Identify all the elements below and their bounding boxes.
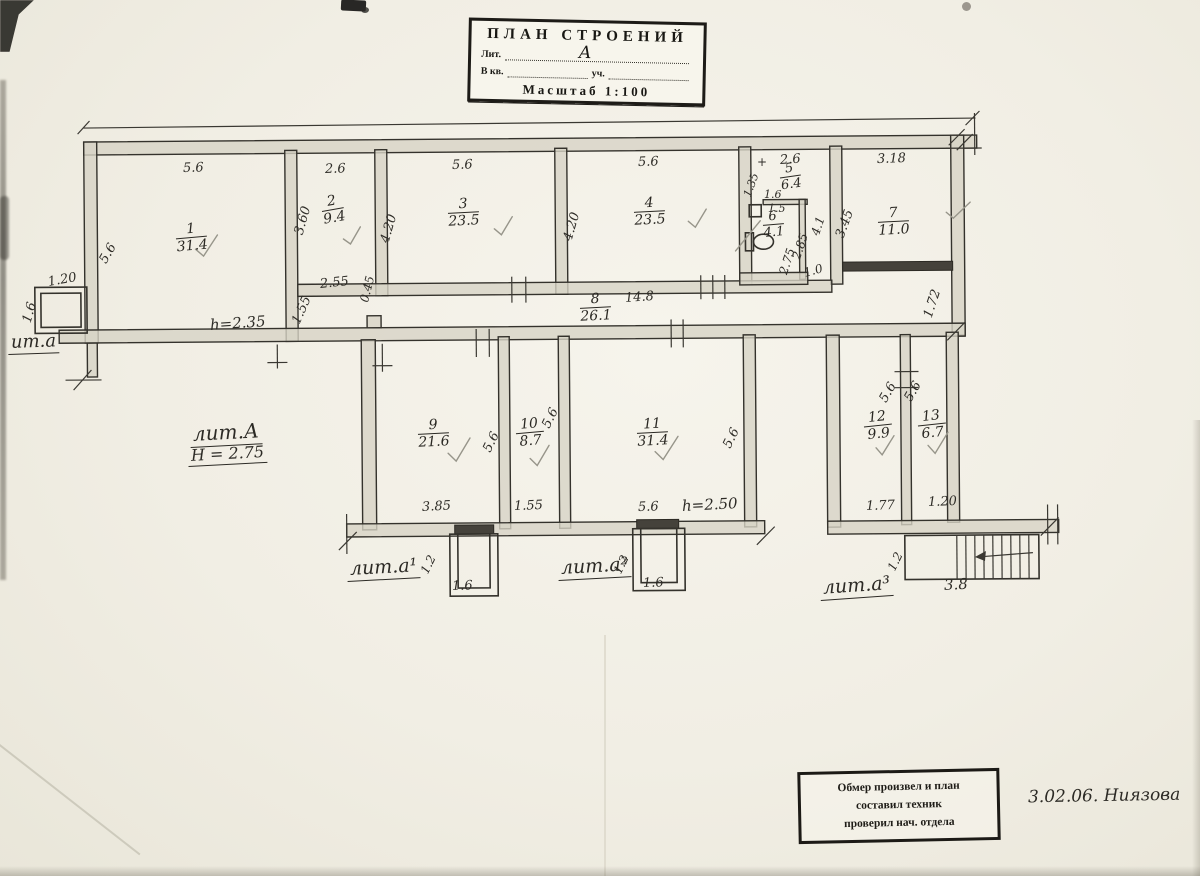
dim-label: 1.5	[768, 202, 786, 215]
stairs-a3	[905, 535, 1039, 580]
wing-height-label: Н = 2.75	[187, 442, 267, 467]
room-label: 136.7	[916, 408, 947, 444]
dim-label: 1.55	[514, 498, 543, 514]
floor-plan-drawing	[0, 0, 1200, 876]
room-label: 711.0	[877, 205, 910, 239]
room-label: 423.5	[633, 195, 666, 229]
scanned-floor-plan-page: ПЛАН СТРОЕНИЙ Лит. А В кв. уч. Масштаб 1…	[0, 0, 1200, 876]
dim-label: 5.6	[452, 157, 473, 173]
dim-label: 1.20	[928, 494, 957, 510]
wing-label-a2: лит.а²	[557, 553, 631, 581]
dim-label: 2.6	[779, 152, 801, 168]
dim-label: 1.6	[764, 188, 782, 201]
room-label: 826.1	[579, 291, 612, 325]
room-label: 131.4	[175, 221, 209, 256]
dim-label: 2.55	[319, 274, 349, 292]
dim-label: 5.6	[183, 160, 204, 176]
dim-label: 1.6	[452, 578, 473, 594]
left-porch	[35, 287, 87, 333]
room-label: 921.6	[417, 417, 450, 451]
room-label: 129.9	[862, 409, 893, 445]
wing-label-a3: лит.а³	[819, 572, 894, 601]
dim-label: 3.8	[944, 575, 969, 594]
room-label: 1131.4	[636, 416, 669, 450]
dim-label: 1.6	[643, 575, 664, 591]
handwritten-date-signature: 3.02.06. Ниязова	[1028, 785, 1181, 808]
room-label: 323.5	[447, 196, 480, 230]
dim-label: 3.18	[877, 151, 906, 167]
room7-threshold	[843, 261, 953, 271]
dim-label: 14.8	[624, 289, 654, 306]
approval-stamp: Обмер произвел и план составил техник пр…	[797, 768, 1000, 844]
dim-label: 5.6	[638, 499, 659, 515]
dim-label: 5.6	[638, 154, 659, 170]
walls-group	[58, 134, 1059, 540]
dim-label: 3.85	[422, 498, 452, 514]
wing-label-a1: лит.а¹	[346, 554, 420, 582]
wing-label-left-porch: ит.а	[8, 330, 60, 355]
dim-label: h=2.35	[209, 312, 266, 334]
dim-label: h=2.50	[682, 494, 739, 515]
dim-label: 1.77	[866, 498, 895, 514]
dim-label: 2.6	[325, 161, 346, 177]
stamp-line: проверил нач. отдела	[801, 813, 997, 835]
dim-label: +	[757, 155, 767, 169]
